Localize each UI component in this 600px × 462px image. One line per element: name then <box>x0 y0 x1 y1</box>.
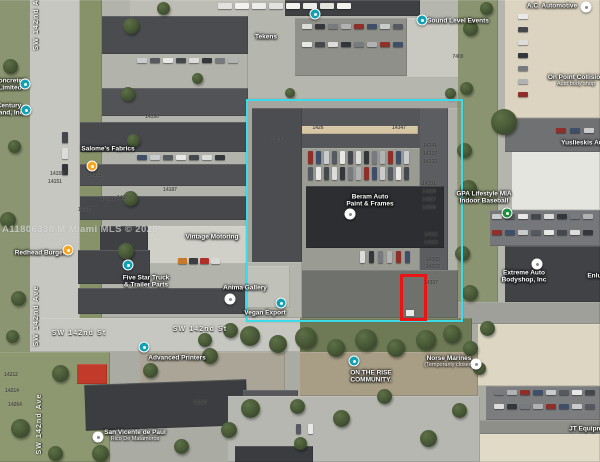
tree <box>452 403 467 418</box>
label-five-star-truck[interactable]: Five Star Truck& Trailer Parts <box>123 275 170 290</box>
car <box>570 214 580 219</box>
car <box>518 27 528 32</box>
address-label-14147: 14147 <box>78 208 92 214</box>
label-line: Vegan Export <box>244 309 286 316</box>
address-label-14151: 14151 <box>48 180 62 186</box>
tree <box>460 82 473 95</box>
car <box>492 230 502 235</box>
lot-east-1 <box>505 118 600 152</box>
redhead-burger-pin[interactable] <box>63 245 74 256</box>
building-vintage <box>148 226 250 264</box>
car <box>367 42 377 47</box>
label-line: Yuslieskis Auto <box>561 139 600 146</box>
car <box>533 390 543 395</box>
car <box>189 58 199 63</box>
label-line: 14190 <box>145 115 159 121</box>
tree <box>3 59 18 74</box>
tree <box>192 73 203 84</box>
label-gpa-lifestyle[interactable]: GPA Lifestyle MIAIndoor Baseball <box>456 191 511 206</box>
label-advanced-printers[interactable]: Advanced Printers <box>148 354 205 361</box>
rv-trailer <box>320 3 334 9</box>
label-line: 14311 <box>424 233 438 239</box>
car <box>137 155 147 160</box>
car <box>354 42 364 47</box>
car <box>200 258 209 264</box>
address-label-14313: 14313 <box>424 241 438 247</box>
tree <box>8 140 21 153</box>
tree <box>241 399 260 418</box>
label-salomes-fabrics[interactable]: Salome's Fabrics <box>81 145 134 152</box>
address-label-14155: 14155 <box>50 172 64 178</box>
car <box>583 230 593 235</box>
address-label-7400: 7400 <box>452 55 463 61</box>
address-label-14347: 14347 <box>392 126 406 132</box>
label-line: 14313 <box>424 241 438 247</box>
label-line: 14305 <box>426 258 440 264</box>
car <box>556 128 566 133</box>
car <box>178 258 187 264</box>
street-label-sw-142nd-ave-bottom: SW 142nd Ave <box>36 394 44 455</box>
tree <box>92 445 109 462</box>
car <box>308 424 313 434</box>
label-line: 14347 <box>392 126 406 132</box>
car <box>189 155 199 160</box>
rv-trailer <box>235 3 249 9</box>
label-redhead-burger[interactable]: Redhead Burger <box>15 249 66 256</box>
building-se-beige-2 <box>480 434 600 462</box>
address-label-14161: 14161 <box>88 173 102 179</box>
car <box>380 24 390 29</box>
tree <box>443 325 461 343</box>
address-label-1426: 1426 <box>312 126 323 132</box>
label-on-the-rise-community[interactable]: ON THE RISECOMMUNITY. <box>350 370 392 385</box>
car <box>570 230 580 235</box>
car <box>163 58 173 63</box>
on-the-rise-community-pin[interactable] <box>349 356 360 367</box>
label-line: 14155 <box>50 172 64 178</box>
car <box>380 42 390 47</box>
car <box>559 390 569 395</box>
tree <box>6 330 19 343</box>
car <box>163 155 173 160</box>
car <box>328 24 338 29</box>
label-line: Advanced Printers <box>148 354 205 361</box>
tree <box>327 339 345 357</box>
car <box>176 155 186 160</box>
tree <box>174 439 189 454</box>
tree <box>294 437 307 450</box>
address-label-14310: 14310 <box>193 401 207 407</box>
car <box>531 230 541 235</box>
label-line: Redhead Burger <box>15 249 66 256</box>
tree <box>295 327 317 349</box>
label-line: 14331 <box>422 182 436 188</box>
car <box>228 58 238 63</box>
label-enluxe[interactable]: Enluxe <box>587 272 600 279</box>
tree <box>11 291 26 306</box>
ac-automotive-pin[interactable] <box>581 2 592 13</box>
car <box>507 390 517 395</box>
tree <box>157 2 170 15</box>
tree <box>290 399 305 414</box>
car <box>520 404 530 409</box>
car <box>557 214 567 219</box>
label-subline: Rico De Matamoros <box>104 437 166 443</box>
label-san-vicente-de-paul[interactable]: San Vicente de PaulRico De Matamoros <box>104 429 166 443</box>
rv-trailer <box>286 3 300 9</box>
san-vicente-de-paul-pin[interactable] <box>93 432 104 443</box>
car <box>584 128 594 133</box>
address-label-14187: 14187 <box>163 188 177 194</box>
anima-gallery-pin[interactable] <box>225 294 236 305</box>
label-ac-automotive[interactable]: A.C. Automotive <box>527 2 577 9</box>
label-beram-auto[interactable]: Beram AutoPaint & Frames <box>346 194 393 209</box>
street-label-sw-142nd-ave-top: SW 142nd Ave <box>33 0 41 50</box>
car <box>518 66 528 71</box>
car <box>492 214 502 219</box>
car <box>393 24 403 29</box>
label-line: 14307 <box>424 281 438 287</box>
unit-highlight <box>400 274 427 321</box>
car <box>328 42 338 47</box>
building-east-white <box>512 152 600 210</box>
label-line: Indoor Baseball <box>456 198 511 205</box>
label-vintage-motoring[interactable]: Vintage Motoring <box>186 233 239 240</box>
advanced-printers-pin[interactable] <box>139 342 150 353</box>
car <box>315 42 325 47</box>
car <box>507 404 517 409</box>
car <box>505 230 515 235</box>
rv-trailer <box>269 3 283 9</box>
street-label-sw-142nd-st-west: SW 142nd St <box>52 330 107 338</box>
address-label-14181: 14181 <box>101 197 115 203</box>
address-label-1400: 1400 <box>271 138 282 144</box>
label-line: & Trailer Parts <box>123 282 170 289</box>
address-label-14311: 14311 <box>424 233 438 239</box>
label-yuslieskis[interactable]: Yuslieskis Auto <box>561 139 600 146</box>
label-vegan-export[interactable]: Vegan Export <box>244 309 286 316</box>
address-label-14329: 14329 <box>422 190 436 196</box>
car <box>544 230 554 235</box>
label-subline: Auto body shop <box>548 82 600 88</box>
label-line: 14187 <box>163 188 177 194</box>
street-east <box>458 302 600 324</box>
car <box>520 390 530 395</box>
label-on-point-collision[interactable]: On Point CollisionAuto body shop <box>548 74 600 88</box>
car <box>518 53 528 58</box>
tree <box>52 365 69 382</box>
label-line: SW 142nd Ave <box>33 0 41 50</box>
label-line: Bodyshop, Inc <box>502 277 547 284</box>
tree <box>480 321 495 336</box>
label-line: Tekens <box>255 33 277 40</box>
car <box>518 79 528 84</box>
car <box>341 42 351 47</box>
car <box>215 155 225 160</box>
tree <box>445 88 456 99</box>
address-label-14327: 14327 <box>422 198 436 204</box>
tree <box>48 446 63 461</box>
car <box>533 404 543 409</box>
car <box>393 42 403 47</box>
label-line: JT Equipment Sales <box>569 425 600 432</box>
gpa-lifestyle-pin[interactable] <box>502 208 513 219</box>
rv-trailer <box>337 3 351 9</box>
car <box>518 40 528 45</box>
building-se-beige <box>478 324 600 386</box>
tree <box>118 243 134 259</box>
label-tekens[interactable]: Tekens <box>255 33 277 40</box>
tree <box>269 335 287 353</box>
building-red-roof <box>77 364 107 384</box>
car <box>572 390 582 395</box>
tree <box>420 430 437 447</box>
label-line: Salome's Fabrics <box>81 145 134 152</box>
tree <box>416 330 436 350</box>
address-label-14303: 14303 <box>426 265 440 271</box>
label-subline: (Temporarily closed) <box>424 363 474 369</box>
warehouse-4 <box>80 164 248 186</box>
label-line: 14212 <box>4 373 18 379</box>
label-extreme-auto[interactable]: Extreme AutoBodyshop, Inc <box>502 270 547 285</box>
tree <box>285 88 295 98</box>
label-line: 14179 <box>117 196 131 202</box>
label-line: 14310 <box>193 401 207 407</box>
salomes-fabrics-pin[interactable] <box>87 161 98 172</box>
label-line: 14327 <box>422 198 436 204</box>
label-line: 14161 <box>88 173 102 179</box>
car <box>215 58 225 63</box>
label-line: 1400 <box>271 138 282 144</box>
label-line: 14214 <box>5 389 19 395</box>
label-line: 14264 <box>8 403 22 409</box>
tree <box>462 285 478 301</box>
car <box>341 24 351 29</box>
label-line: 1426 <box>312 126 323 132</box>
car <box>302 24 312 29</box>
label-line: 14329 <box>422 190 436 196</box>
address-label-14305: 14305 <box>426 258 440 264</box>
car <box>150 155 160 160</box>
label-line: Vintage Motoring <box>186 233 239 240</box>
tree <box>480 2 493 15</box>
car <box>62 132 68 143</box>
car <box>354 24 364 29</box>
tree <box>123 18 139 34</box>
car <box>585 404 595 409</box>
tree <box>11 419 30 438</box>
vegan-export-pin[interactable] <box>276 298 287 309</box>
tree <box>198 333 212 347</box>
concreted-limited-pin[interactable] <box>20 79 31 90</box>
tree <box>333 410 350 427</box>
street-label-sw-142nd-st-east: SW 142nd St <box>173 326 228 334</box>
address-label-14307: 14307 <box>424 281 438 287</box>
grass-band-east <box>458 0 498 322</box>
label-jt-equipment[interactable]: JT Equipment Sales <box>569 425 600 432</box>
car <box>518 14 528 19</box>
label-line: 14337 <box>423 152 437 158</box>
label-line: SW 142nd St <box>52 330 107 338</box>
address-label-14333: 14333 <box>423 160 437 166</box>
car <box>494 404 504 409</box>
rv-trailer <box>252 3 266 9</box>
car <box>150 58 160 63</box>
car <box>546 390 556 395</box>
tree <box>491 109 517 135</box>
car <box>518 92 528 97</box>
label-line: 14147 <box>78 208 92 214</box>
car <box>176 58 186 63</box>
tree <box>355 329 377 351</box>
car <box>211 258 220 264</box>
car <box>137 58 147 63</box>
label-line: SW 142nd St <box>173 326 228 334</box>
label-line: 14151 <box>48 180 62 186</box>
label-line: COMMUNITY. <box>350 377 392 384</box>
label-norse-marines[interactable]: Norse Marines(Temporarily closed) <box>424 355 474 369</box>
norse-marines-pin[interactable] <box>471 359 482 370</box>
century-land-pin[interactable] <box>21 105 32 116</box>
address-label-14337: 14337 <box>423 152 437 158</box>
satellite-map[interactable]: Sound Level EventsA.C. AutomotiveTekensC… <box>0 0 600 462</box>
sound-level-events-pin[interactable] <box>417 15 428 26</box>
label-line: SW 142nd Ave <box>36 394 44 455</box>
car <box>296 424 301 434</box>
address-label-14214: 14214 <box>5 389 19 395</box>
mls-watermark: A11806338 M Miami MLS © 2025 <box>2 224 158 235</box>
pavement-top <box>407 18 460 78</box>
tree <box>463 341 478 356</box>
car <box>202 155 212 160</box>
label-line: 14303 <box>426 265 440 271</box>
address-label-14179: 14179 <box>117 196 131 202</box>
label-sound-level-events[interactable]: Sound Level Events <box>427 17 489 24</box>
car <box>315 24 325 29</box>
car <box>202 58 212 63</box>
address-label-14341: 14341 <box>423 144 437 150</box>
address-label-14264: 14264 <box>8 403 22 409</box>
street-label-sw-142nd-ave-mid: SW 142nd Ave <box>33 286 41 347</box>
tree <box>240 326 260 346</box>
address-label-14190: 14190 <box>145 115 159 121</box>
label-line: Paint & Frames <box>346 201 393 208</box>
label-line: 14325 <box>422 206 436 212</box>
five-star-truck-pin[interactable] <box>123 260 134 271</box>
label-line: 14181 <box>101 197 115 203</box>
car <box>546 404 556 409</box>
address-label-14325: 14325 <box>422 206 436 212</box>
car <box>544 214 554 219</box>
address-label-14331: 14331 <box>422 182 436 188</box>
car <box>531 214 541 219</box>
label-line: 14333 <box>423 160 437 166</box>
label-line: Anima Gallery <box>223 284 267 291</box>
label-line: 14341 <box>423 144 437 150</box>
car <box>583 214 593 219</box>
car <box>494 390 504 395</box>
tree <box>377 389 392 404</box>
tree <box>143 363 158 378</box>
car <box>572 404 582 409</box>
car <box>367 24 377 29</box>
beram-auto-pin[interactable] <box>345 209 356 220</box>
tree <box>387 339 405 357</box>
label-anima-gallery[interactable]: Anima Gallery <box>223 284 267 291</box>
extreme-auto-pin[interactable] <box>532 259 543 270</box>
label-line: Sound Level Events <box>427 17 489 24</box>
car <box>189 258 198 264</box>
car <box>518 230 528 235</box>
car <box>302 42 312 47</box>
car <box>585 390 595 395</box>
address-label-14212: 14212 <box>4 373 18 379</box>
car <box>557 230 567 235</box>
car <box>570 128 580 133</box>
rv-trailer <box>218 3 232 9</box>
label-line: A.C. Automotive <box>527 2 577 9</box>
tree <box>121 87 135 101</box>
car <box>559 404 569 409</box>
warehouse-6 <box>78 288 245 314</box>
tree <box>221 422 237 438</box>
label-line: 7400 <box>452 55 463 61</box>
label-line: Enluxe <box>587 272 600 279</box>
car <box>518 214 528 219</box>
car <box>62 148 68 159</box>
label-line: SW 142nd Ave <box>33 286 41 347</box>
tekens-pin[interactable] <box>310 9 321 20</box>
